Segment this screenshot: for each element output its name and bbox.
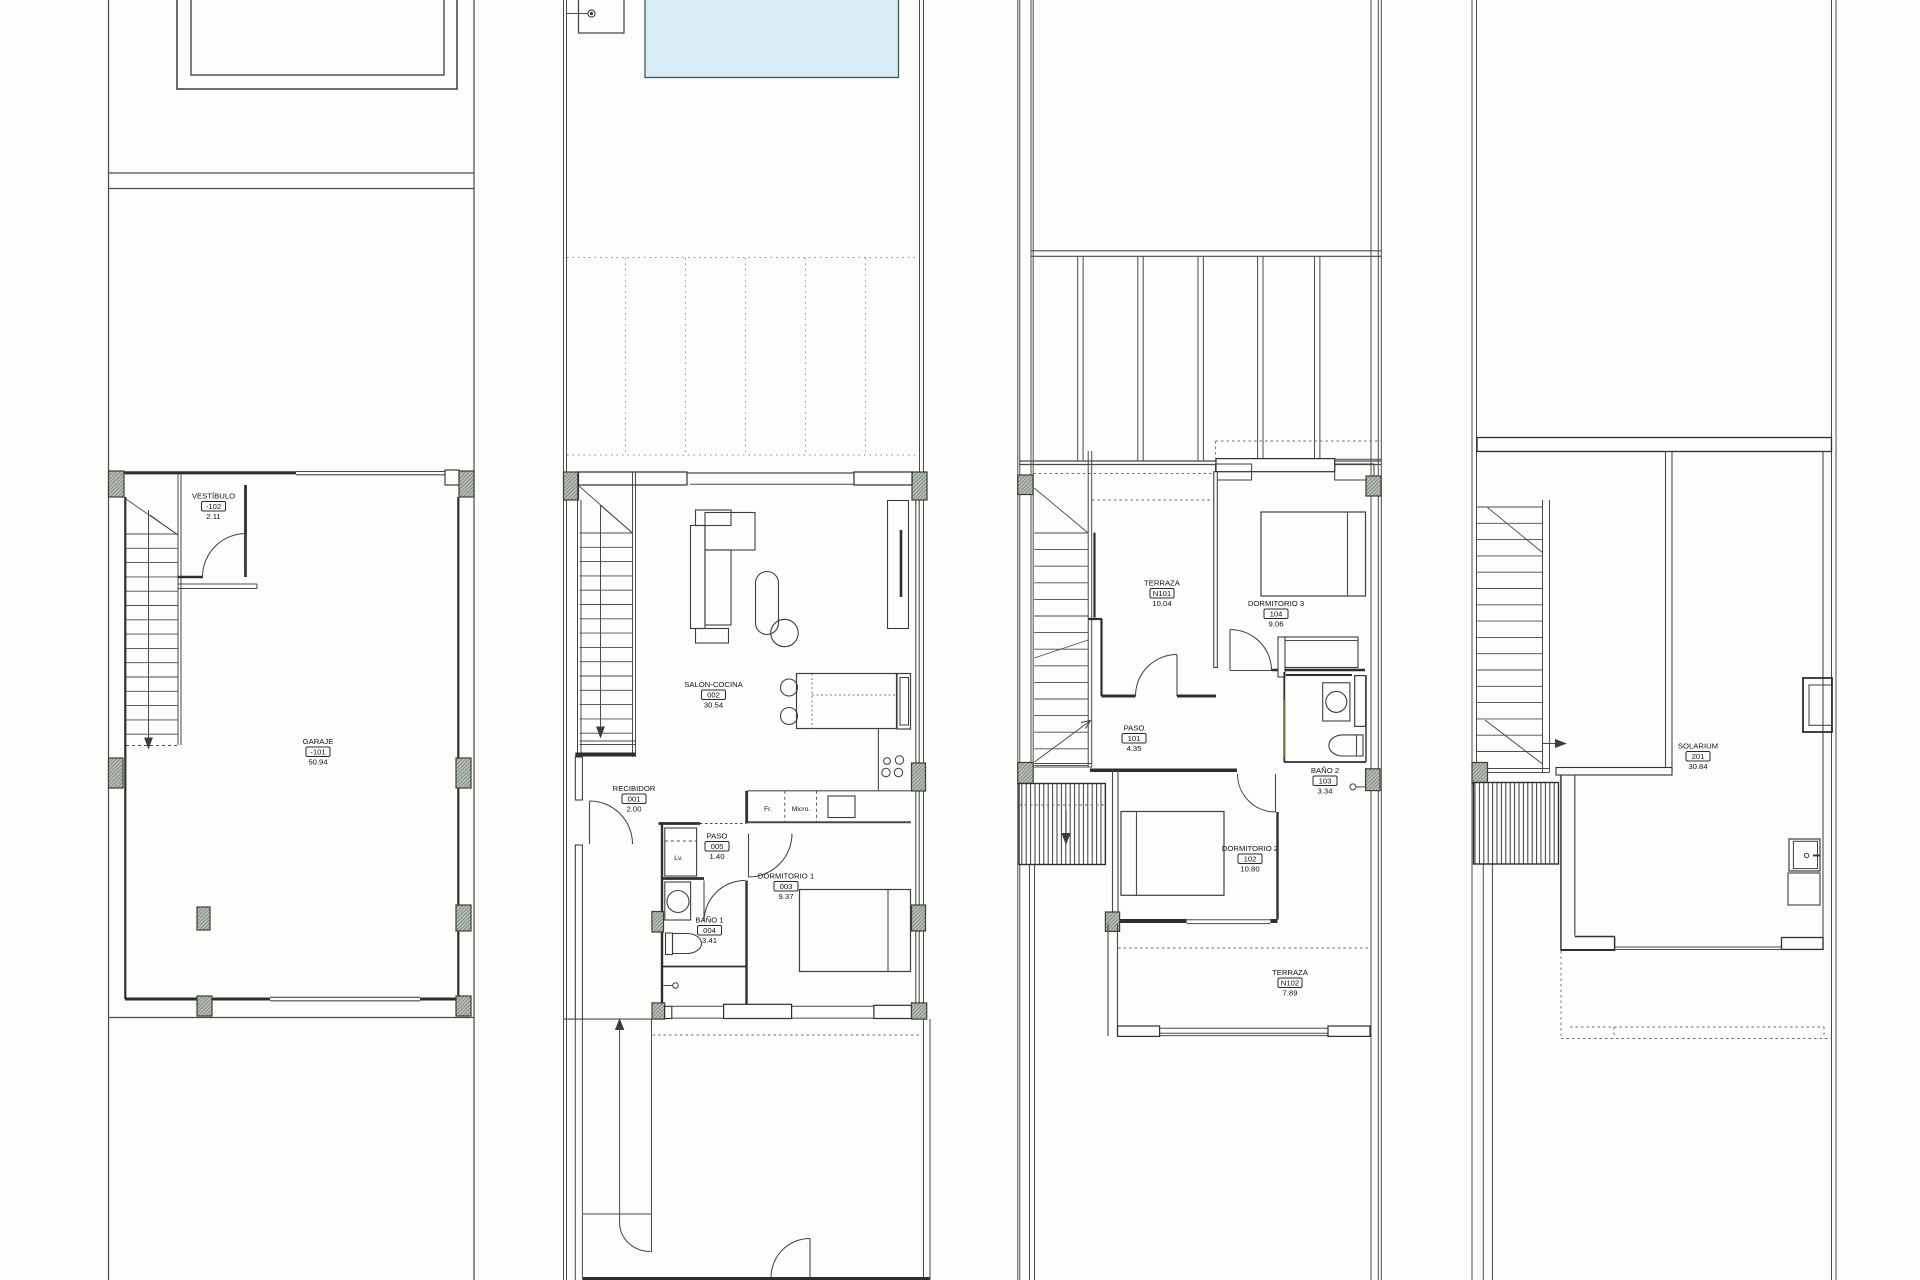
svg-text:2.11: 2.11	[206, 512, 220, 521]
svg-text:30.84: 30.84	[1688, 762, 1708, 771]
svg-text:003: 003	[780, 882, 793, 891]
svg-text:PASO: PASO	[707, 832, 728, 841]
svg-text:SOLARIUM: SOLARIUM	[1678, 742, 1718, 751]
svg-text:VESTÍBULO: VESTÍBULO	[192, 492, 235, 501]
svg-text:N101: N101	[1153, 589, 1171, 598]
svg-text:9.06: 9.06	[1269, 620, 1284, 629]
svg-text:004: 004	[703, 926, 717, 935]
svg-text:10.80: 10.80	[1240, 865, 1259, 874]
svg-text:BAÑO 2: BAÑO 2	[1311, 766, 1339, 775]
svg-text:101: 101	[1128, 734, 1141, 743]
svg-text:DORMITORIO 2: DORMITORIO 2	[1222, 844, 1278, 853]
svg-text:10.04: 10.04	[1152, 599, 1172, 608]
svg-text:9.37: 9.37	[779, 892, 794, 901]
svg-text:PASO: PASO	[1124, 724, 1145, 733]
svg-text:2.00: 2.00	[627, 805, 642, 814]
svg-text:3.34: 3.34	[1318, 787, 1334, 796]
svg-text:7.89: 7.89	[1283, 989, 1298, 998]
svg-text:005: 005	[711, 842, 724, 851]
svg-text:GARAJE: GARAJE	[303, 737, 334, 746]
svg-text:-102: -102	[206, 502, 221, 511]
svg-text:30.54: 30.54	[704, 701, 724, 710]
svg-text:Fr.: Fr.	[764, 806, 772, 813]
svg-text:001: 001	[628, 795, 641, 804]
svg-text:SALÓN-COCINA: SALÓN-COCINA	[684, 680, 743, 689]
svg-text:TERRAZA: TERRAZA	[1272, 968, 1309, 977]
svg-text:103: 103	[1319, 777, 1332, 786]
svg-text:Micro.: Micro.	[792, 806, 811, 813]
svg-text:DORMITORIO 3: DORMITORIO 3	[1248, 599, 1304, 608]
svg-text:102: 102	[1244, 855, 1257, 864]
svg-text:104: 104	[1270, 610, 1284, 619]
svg-text:201: 201	[1692, 752, 1705, 761]
svg-text:RECIBIDOR: RECIBIDOR	[613, 784, 656, 793]
svg-text:002: 002	[707, 691, 720, 700]
svg-text:3.41: 3.41	[702, 936, 717, 945]
svg-text:N102: N102	[1281, 979, 1299, 988]
svg-text:BAÑO 1: BAÑO 1	[695, 916, 723, 925]
svg-text:4.35: 4.35	[1127, 744, 1142, 753]
svg-text:-101: -101	[310, 748, 325, 757]
svg-text:TERRAZA: TERRAZA	[1144, 579, 1181, 588]
svg-text:Lv.: Lv.	[674, 855, 683, 862]
svg-text:DORMITORIO 1: DORMITORIO 1	[758, 872, 814, 881]
svg-text:50.94: 50.94	[308, 758, 328, 767]
svg-text:1.40: 1.40	[710, 852, 725, 861]
